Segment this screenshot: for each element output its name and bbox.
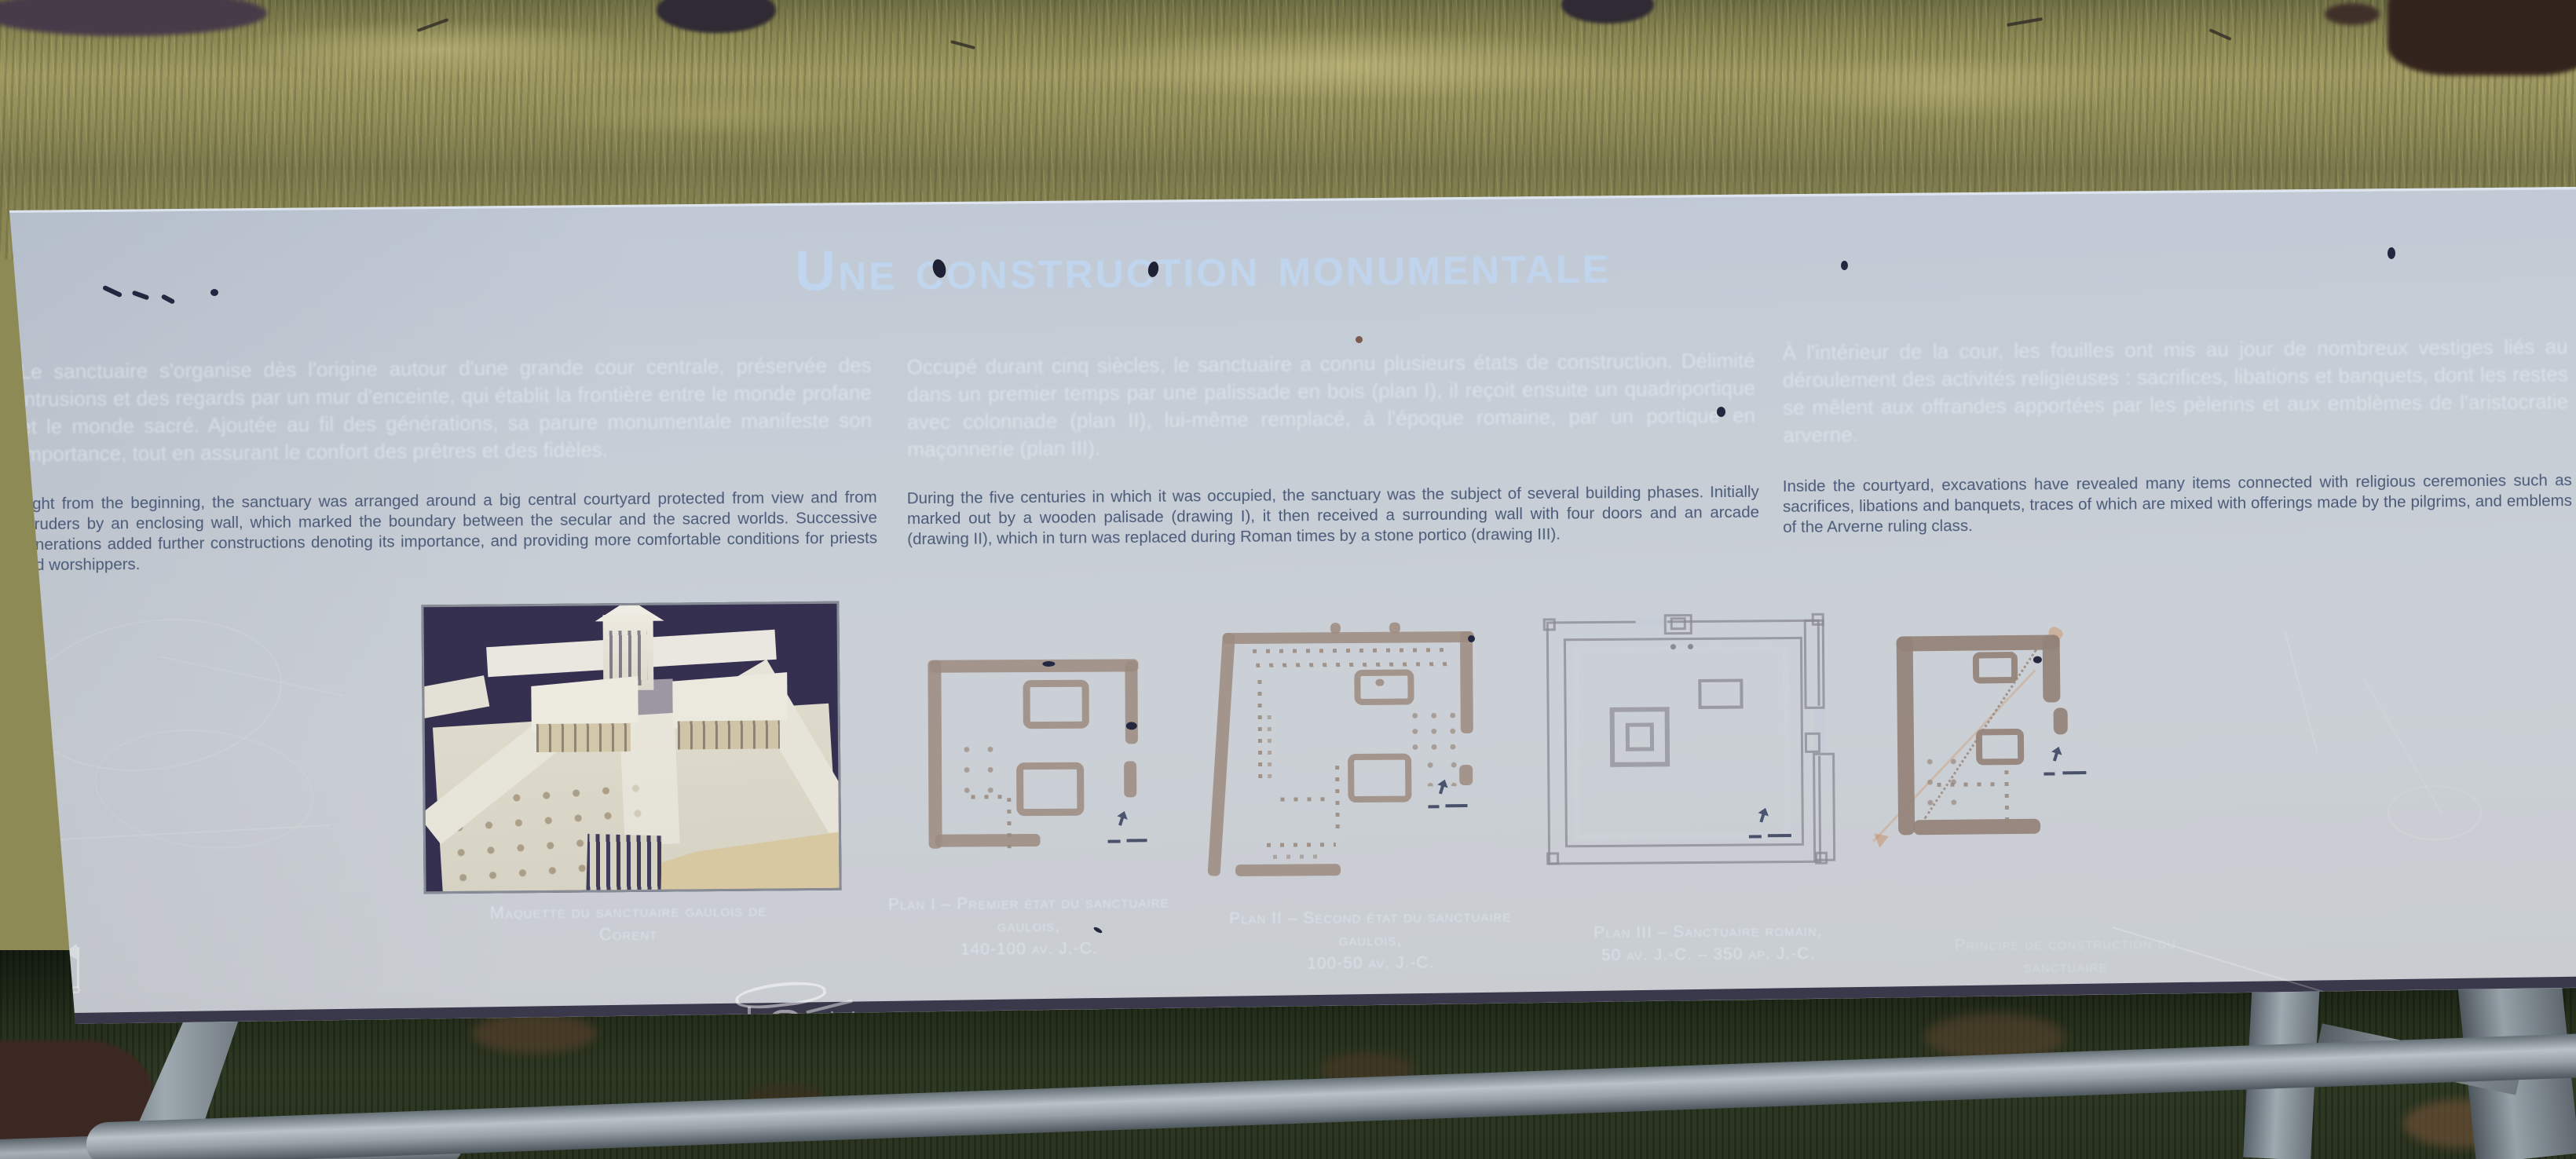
- posthole-row: [1335, 766, 1340, 835]
- posthole-row: [1257, 680, 1262, 786]
- building-wall-left-posts: [536, 723, 631, 752]
- scale-bar: [2044, 772, 2055, 775]
- enclosure-wall: [1125, 660, 1138, 744]
- gate-post: [1389, 623, 1400, 634]
- dry-grass-streak: [550, 90, 880, 137]
- posthole-scatter: [1406, 707, 1464, 752]
- building-plan: [1023, 680, 1089, 729]
- building-plan: [1354, 669, 1414, 705]
- posthole-row: [1273, 854, 1320, 858]
- site-photograph: Une construction monumentale Le sanctuai…: [0, 0, 2576, 1159]
- plan-caption-text: Principe de construction du sanctuaire: [1954, 934, 2176, 977]
- dark-object-top-left: [0, 0, 267, 36]
- plan-iv-caption: Principe de construction du sanctuaire: [1932, 932, 2199, 980]
- dark-patch-top-right-small: [2325, 3, 2380, 25]
- posthole-dot: [1688, 644, 1693, 649]
- enclosure-wall: [929, 659, 1138, 672]
- enclosure-wall: [2054, 707, 2068, 734]
- dirt-speck: [1356, 336, 1363, 343]
- annex-building: [1698, 679, 1743, 709]
- plan-caption-dates: 140-100 av. J.-C.: [961, 939, 1098, 959]
- temple-cella-inner: [1626, 722, 1654, 751]
- posthole-scatter: [1918, 751, 1974, 815]
- plan-iii-drawing: [1543, 612, 1848, 882]
- building-detail: [1375, 679, 1384, 686]
- palisade-fence: [586, 834, 662, 894]
- dry-grass-streak: [236, 20, 644, 79]
- twig: [2007, 17, 2043, 27]
- posthole-row: [2004, 770, 2009, 830]
- photo-caption: Maquette du sanctuaire gaulois de Corent: [471, 898, 785, 946]
- north-arrow-icon: [1439, 781, 1446, 794]
- plan-caption-text: Plan II – Second état du sanctuaire gaul…: [1229, 907, 1511, 949]
- dark-object-on-grass: [657, 0, 776, 33]
- enclosure-wall: [2043, 634, 2061, 702]
- leaf-litter: [471, 1013, 597, 1054]
- scale-bar: [2062, 771, 2086, 774]
- scale-bar: [1768, 834, 1791, 837]
- enclosure-wall: [1223, 631, 1474, 644]
- maquette-photo: [421, 601, 841, 894]
- plan-caption-dates: 50 av. J.-C. – 350 ap. J.-C.: [1601, 945, 1816, 964]
- english-paragraph-2: During the five centuries in which it wa…: [907, 482, 1760, 550]
- scale-bar: [1108, 839, 1121, 843]
- dirt-speck: [210, 289, 218, 296]
- enclosure-wall: [1459, 765, 1473, 785]
- plan-iii-caption: Plan III – Sanctuaire romain, 50 av. J.-…: [1559, 919, 1857, 967]
- plan-ii-caption: Plan II – Second état du sanctuaire gaul…: [1221, 905, 1520, 975]
- plan-caption-text: Plan I – Premier état du sanctuaire gaul…: [888, 893, 1169, 935]
- plan-caption-text: Plan III – Sanctuaire romain,: [1594, 922, 1822, 942]
- scale-bar: [1749, 835, 1762, 838]
- dirt-speck: [1841, 261, 1848, 270]
- posthole-row: [1267, 843, 1336, 847]
- dry-grass-streak: [1767, 55, 2128, 122]
- north-arrow-icon: [1118, 813, 1125, 825]
- posthole-row: [1253, 648, 1451, 653]
- portico-annex: [1805, 733, 1820, 753]
- north-arrow-icon: [2053, 748, 2060, 761]
- dirt-speck: [2388, 247, 2395, 259]
- scale-bar: [1445, 804, 1467, 807]
- scale-bar: [1127, 839, 1147, 842]
- french-paragraph-1: Le sanctuaire s'organise dès l'origine a…: [19, 352, 872, 469]
- corner-pillar: [1546, 852, 1559, 865]
- gate-post: [1330, 623, 1341, 634]
- dry-grass-streak: [1060, 27, 1626, 102]
- gate-structure-inner: [1670, 617, 1686, 630]
- enclosure-wall: [1235, 864, 1341, 876]
- enclosure-wall: [928, 660, 942, 849]
- dirt-speck: [1126, 722, 1137, 729]
- panel-title: Une construction monumentale: [795, 229, 1895, 303]
- left-pavilion-roof: [421, 675, 489, 719]
- dirt-speck: [1717, 407, 1725, 417]
- posthole-row: [1256, 662, 1449, 667]
- english-paragraph-1: Right from the beginning, the sanctuary …: [17, 488, 878, 576]
- posthole-dot: [1670, 644, 1676, 649]
- dark-patch-top-right: [2388, 0, 2576, 75]
- twig: [2208, 28, 2231, 41]
- portico-annex: [1804, 620, 1825, 709]
- plan-i-drawing: [928, 656, 1156, 854]
- corner-pillar: [1543, 618, 1556, 631]
- enclosure-wall: [1913, 819, 2040, 835]
- portico-annex: [1813, 753, 1835, 861]
- enclosure-wall: [1897, 636, 1916, 835]
- dirt-speck: [1468, 635, 1475, 642]
- scale-bar: [1428, 805, 1439, 808]
- posthole-row: [1007, 798, 1011, 848]
- french-paragraph-2: Occupé durant cinq siècles, le sanctuair…: [906, 347, 1755, 463]
- twig: [950, 40, 975, 49]
- posthole-row: [1280, 797, 1330, 801]
- posthole-row: [1268, 715, 1272, 786]
- marker-sketch-pole: [77, 947, 79, 988]
- building-plan: [1976, 729, 2024, 766]
- building-plan: [1016, 762, 1084, 816]
- building-plan: [1348, 754, 1411, 803]
- enclosure-wall: [1124, 761, 1136, 797]
- wall-gap: [1636, 617, 1667, 627]
- plan-iv-drawing: [1895, 631, 2133, 854]
- dirt-speck: [1042, 661, 1055, 667]
- english-paragraph-3: Inside the courtyard, excavations have r…: [1783, 470, 2573, 538]
- enclosure-wall: [935, 834, 1041, 847]
- building-plan: [1973, 652, 2018, 684]
- plan-ii-drawing: [1221, 620, 1490, 880]
- plan-caption-dates: 100-50 av. J.-C.: [1307, 953, 1434, 972]
- building-wall-right-posts: [678, 720, 780, 749]
- posthole-scatter: [955, 739, 1010, 798]
- french-paragraph-3: À l'intérieur de la cour, les fouilles o…: [1782, 333, 2568, 449]
- dark-object-on-grass: [1561, 0, 1654, 24]
- plan-i-caption: Plan I – Premier état du sanctuaire gaul…: [880, 890, 1179, 961]
- dirt-speck: [2033, 656, 2042, 664]
